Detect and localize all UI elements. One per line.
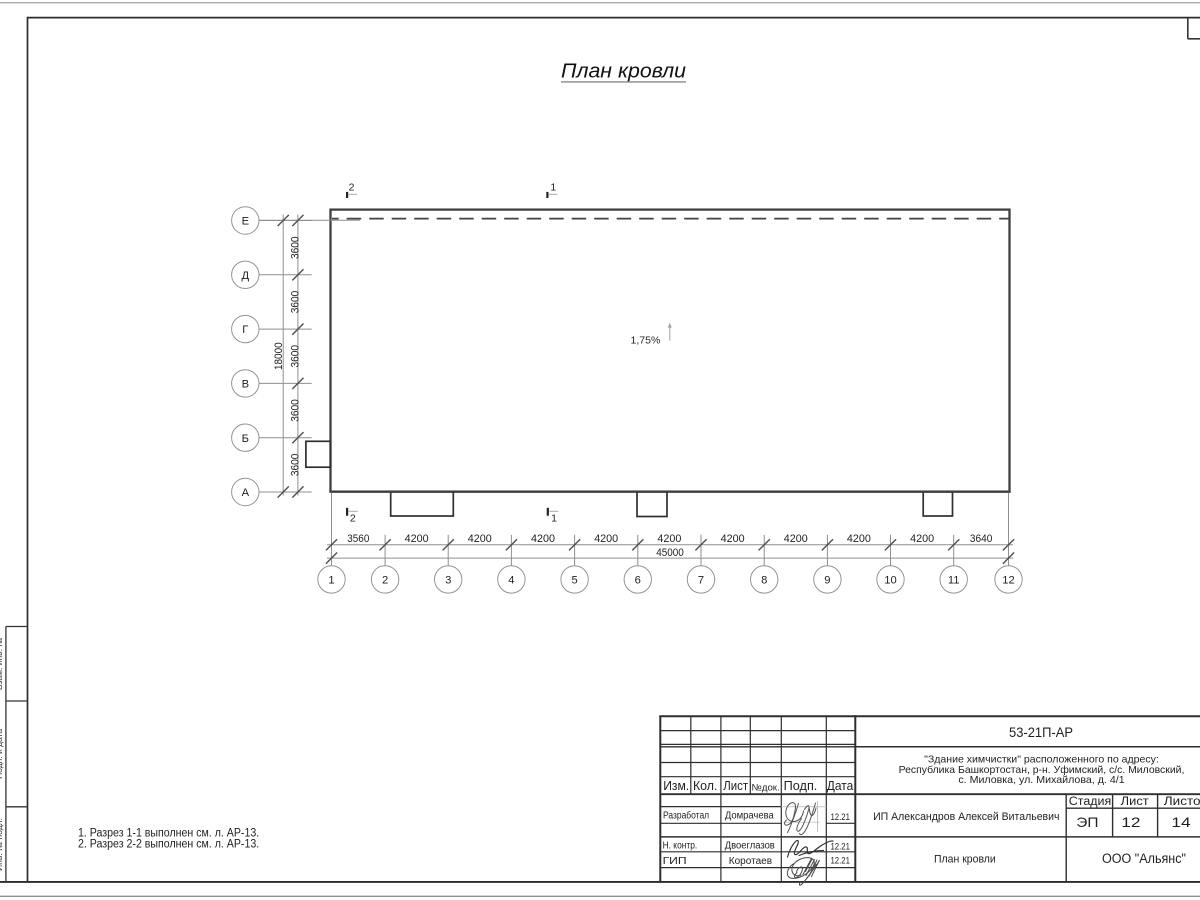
svg-text:№док.: №док. — [752, 782, 780, 793]
svg-text:11: 11 — [948, 575, 960, 587]
svg-text:3600: 3600 — [290, 345, 302, 368]
svg-text:1,75%: 1,75% — [631, 334, 661, 346]
svg-text:12: 12 — [1121, 815, 1140, 830]
svg-text:4200: 4200 — [468, 533, 492, 545]
svg-text:3560: 3560 — [347, 533, 369, 545]
svg-text:4200: 4200 — [721, 533, 745, 545]
svg-text:Дата: Дата — [827, 778, 854, 793]
svg-text:ИП Александров Алексей Виталье: ИП Александров Алексей Витальевич — [873, 811, 1059, 823]
svg-text:12.21: 12.21 — [830, 841, 850, 852]
svg-text:3640: 3640 — [970, 533, 993, 545]
svg-text:Двоеглазов: Двоеглазов — [725, 841, 775, 852]
svg-text:1: 1 — [328, 575, 334, 587]
svg-text:4200: 4200 — [784, 533, 808, 545]
svg-text:4200: 4200 — [594, 533, 618, 545]
svg-text:Коротаев: Коротаев — [729, 856, 772, 867]
svg-text:Лист: Лист — [1121, 796, 1150, 808]
svg-text:ООО "Альянс": ООО "Альянс" — [1102, 851, 1186, 866]
svg-text:18000: 18000 — [273, 342, 285, 370]
svg-text:3600: 3600 — [290, 399, 302, 422]
svg-text:Листов: Листов — [1164, 796, 1200, 808]
svg-text:4200: 4200 — [405, 533, 429, 545]
svg-text:План кровли: План кровли — [561, 60, 686, 83]
svg-text:Г: Г — [242, 324, 248, 336]
svg-text:Изм.: Изм. — [663, 778, 689, 793]
svg-text:6: 6 — [635, 575, 641, 587]
svg-text:Подп.: Подп. — [784, 778, 818, 793]
svg-text:7: 7 — [698, 575, 704, 587]
svg-text:9: 9 — [824, 575, 830, 587]
svg-text:Лист: Лист — [723, 778, 748, 793]
svg-text:2: 2 — [382, 575, 388, 587]
svg-text:10: 10 — [884, 575, 896, 587]
svg-text:План кровли: План кровли — [934, 854, 996, 866]
svg-text:А: А — [242, 487, 250, 499]
svg-text:3600: 3600 — [290, 291, 302, 314]
svg-text:Разработал: Разработал — [663, 810, 709, 822]
svg-text:4: 4 — [508, 575, 514, 587]
svg-text:3600: 3600 — [290, 236, 302, 259]
svg-text:14: 14 — [1171, 815, 1191, 830]
svg-text:45000: 45000 — [656, 547, 684, 559]
svg-text:53-21П-АР: 53-21П-АР — [1009, 724, 1073, 740]
svg-text:8: 8 — [761, 575, 767, 587]
svg-text:4200: 4200 — [657, 533, 681, 545]
svg-text:Стадия: Стадия — [1069, 796, 1112, 808]
svg-text:4200: 4200 — [847, 533, 871, 545]
svg-text:Н. контр.: Н. контр. — [663, 841, 698, 852]
svg-text:Б: Б — [242, 433, 249, 445]
svg-text:2. Разрез 2-2 выполнен см. л.: 2. Разрез 2-2 выполнен см. л. АР-13. — [78, 838, 259, 850]
svg-text:Инв. № подл.: Инв. № подл. — [0, 818, 4, 871]
svg-text:4200: 4200 — [910, 533, 934, 545]
svg-text:ЭП: ЭП — [1076, 815, 1098, 830]
svg-text:с. Миловка, ул. Михайлова, д.: с. Миловка, ул. Михайлова, д. 4/1 — [958, 775, 1125, 786]
svg-text:В: В — [242, 379, 249, 391]
svg-text:Домрачева: Домрачева — [725, 811, 774, 822]
svg-text:Кол.: Кол. — [693, 778, 718, 793]
svg-text:12: 12 — [1002, 575, 1014, 587]
svg-text:5: 5 — [571, 575, 577, 587]
svg-text:12.21: 12.21 — [830, 812, 850, 823]
svg-text:3600: 3600 — [290, 454, 302, 477]
svg-text:3: 3 — [445, 575, 451, 587]
svg-text:1: 1 — [551, 513, 557, 525]
svg-text:2: 2 — [350, 513, 356, 525]
svg-text:12.21: 12.21 — [830, 855, 850, 866]
svg-text:2: 2 — [349, 181, 355, 193]
svg-text:4200: 4200 — [531, 533, 555, 545]
svg-text:Подп. и дата: Подп. и дата — [0, 729, 4, 779]
svg-text:1: 1 — [550, 181, 556, 193]
svg-text:ГИП: ГИП — [663, 856, 687, 867]
svg-text:Республика Башкортостан, р-н.: Республика Башкортостан, р-н. Уфимский, … — [899, 764, 1185, 776]
svg-text:Е: Е — [242, 216, 249, 228]
svg-text:Д: Д — [242, 270, 250, 282]
svg-text:Взам. инв. №: Взам. инв. № — [0, 637, 4, 690]
